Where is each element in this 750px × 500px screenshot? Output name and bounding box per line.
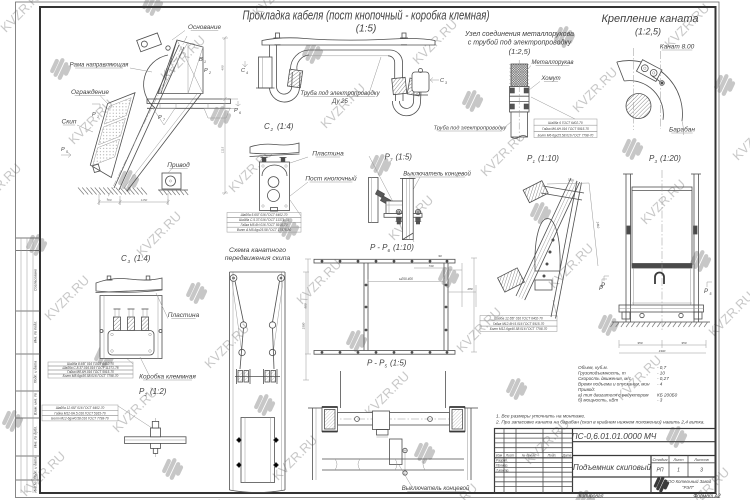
svg-text:Инв. № подл.: Инв. № подл. <box>34 321 38 343</box>
svg-text:(1:5): (1:5) <box>356 24 377 35</box>
svg-text:Хомут: Хомут <box>540 76 560 82</box>
svg-text:РП: РП <box>657 468 664 474</box>
svg-text:1. Все размеры уточнить на мон: 1. Все размеры уточнить на монтаже. <box>496 414 585 420</box>
svg-text:Стадия: Стадия <box>653 457 669 462</box>
svg-text:2. При запасовке каната на бар: 2. При запасовке каната на барабан (скип… <box>495 419 705 426</box>
svg-text:Коробка клеммная: Коробка клеммная <box>139 373 196 381</box>
svg-text:Гайка М6-6Н.016 ГОСТ 5915-70: Гайка М6-6Н.016 ГОСТ 5915-70 <box>542 127 589 131</box>
svg-text:1115: 1115 <box>221 147 225 154</box>
svg-text:1900: 1900 <box>659 349 666 353</box>
svg-text:P - P: P - P <box>367 359 385 368</box>
svg-text:C: C <box>264 122 270 131</box>
svg-text:280: 280 <box>466 287 472 291</box>
svg-text:Провер.: Провер. <box>496 464 508 468</box>
svg-text:(1:5): (1:5) <box>390 359 407 368</box>
svg-text:490: 490 <box>221 65 225 70</box>
svg-text:Канат 8.00: Канат 8.00 <box>660 44 695 51</box>
svg-text:Разраб.: Разраб. <box>496 459 508 463</box>
svg-text:Согласовано: Согласовано <box>34 269 38 291</box>
svg-text:5: 5 <box>710 292 712 296</box>
svg-text:Подп. и дата: Подп. и дата <box>34 361 38 384</box>
svg-text:740: 740 <box>567 178 573 183</box>
svg-text:P: P <box>61 147 65 153</box>
svg-text:Болт М6-6gх25.58.016 ГОСТ 7798: Болт М6-6gх25.58.016 ГОСТ 7798-70 <box>538 133 594 137</box>
svg-text:Схема канатного: Схема канатного <box>229 247 286 254</box>
svg-text:ПС-0,6.01.01.0000 МЧ: ПС-0,6.01.01.0000 МЧ <box>572 431 657 441</box>
svg-text:(1:2): (1:2) <box>150 387 167 396</box>
svg-text:P: P <box>599 286 603 292</box>
svg-text:Взам. инв. №: Взам. инв. № <box>34 393 38 415</box>
svg-text:Лист: Лист <box>672 457 684 462</box>
svg-text:1410: 1410 <box>596 221 601 228</box>
svg-text:№ докум.: № докум. <box>522 454 537 458</box>
svg-text:Инв. № дубл.: Инв. № дубл. <box>34 426 38 448</box>
svg-text:Листов: Листов <box>693 457 709 462</box>
svg-text:760: 760 <box>106 198 111 202</box>
svg-text:B: B <box>199 57 203 63</box>
svg-text:Пост кнопочный: Пост кнопочный <box>305 175 357 183</box>
svg-text:(1:2,5): (1:2,5) <box>635 27 661 37</box>
svg-text:- 4: - 4 <box>657 381 663 386</box>
svg-text:КБ 200Б0: КБ 200Б0 <box>657 392 678 397</box>
svg-text:(1:10): (1:10) <box>538 154 559 163</box>
svg-text:Шайба 5.65Г 016 ГОСТ 6402-70: Шайба 5.65Г 016 ГОСТ 6402-70 <box>241 213 288 217</box>
svg-text:P: P <box>704 289 708 295</box>
svg-text:Шайба С.5.37.016 ГОСТ 11371-78: Шайба С.5.37.016 ГОСТ 11371-78 <box>239 218 289 222</box>
svg-text:Шайба 12.65Г 016 ГОСТ 6402-70: Шайба 12.65Г 016 ГОСТ 6402-70 <box>56 406 105 410</box>
svg-text:C: C <box>121 254 127 263</box>
svg-text:- 10: - 10 <box>657 370 665 375</box>
svg-text:Шайба 12.65Г 016 ГОСТ 6402-70: Шайба 12.65Г 016 ГОСТ 6402-70 <box>494 317 543 321</box>
svg-text:Дата: Дата <box>562 454 572 458</box>
svg-text:Болт М12-6gх40.58.016 ГОСТ 779: Болт М12-6gх40.58.016 ГОСТ 7798-70 <box>490 327 548 331</box>
svg-text:1: 1 <box>677 468 680 474</box>
svg-text:Выключатель концевой: Выключатель концевой <box>402 485 470 492</box>
svg-text:C: C <box>241 68 245 74</box>
svg-text:1500: 1500 <box>302 322 306 329</box>
svg-text:ООО Котельный Завод: ООО Котельный Завод <box>665 479 712 484</box>
svg-text:1150: 1150 <box>141 198 148 202</box>
svg-text:4: 4 <box>246 71 248 75</box>
svg-text:Грузоподъемность, т: Грузоподъемность, т <box>578 370 626 375</box>
svg-text:1: 1 <box>97 115 99 119</box>
svg-text:Гайка М12-6Н.5.016 ГОСТ 5915-7: Гайка М12-6Н.5.016 ГОСТ 5915-70 <box>54 411 105 415</box>
svg-text:Лист: Лист <box>505 454 515 458</box>
svg-text:Пластина: Пластина <box>168 312 200 319</box>
svg-text:(1:5): (1:5) <box>396 153 413 162</box>
svg-text:P: P <box>158 115 162 121</box>
svg-text:Прокладка кабеля (пост кнопочн: Прокладка кабеля (пост кнопочный - короб… <box>243 9 490 23</box>
svg-text:Винт А.М5-6gх25.58 ГОСТ 17475-: Винт А.М5-6gх25.58 ГОСТ 17475-80 <box>237 228 292 232</box>
svg-text:P: P <box>234 108 238 114</box>
svg-text:C: C <box>440 78 444 84</box>
svg-text:3: 3 <box>445 81 447 85</box>
svg-text:Подп. и дата: Подп. и дата <box>34 457 38 480</box>
svg-text:Металлорукав: Металлорукав <box>531 60 573 66</box>
svg-text:90: 90 <box>438 254 442 258</box>
svg-text:740: 740 <box>428 264 433 268</box>
svg-text:Выключатель концевой: Выключатель концевой <box>403 171 471 178</box>
svg-text:2: 2 <box>208 71 211 75</box>
svg-text:950: 950 <box>637 341 642 345</box>
svg-text:(1:20): (1:20) <box>660 154 681 163</box>
svg-text:3: 3 <box>700 468 703 474</box>
svg-text:Подъемник скиповый: Подъемник скиповый <box>573 463 652 472</box>
svg-text:900: 900 <box>304 303 308 308</box>
svg-text:Привод: Привод <box>167 161 190 169</box>
svg-text:(1:10): (1:10) <box>393 243 414 252</box>
svg-text:(1:4): (1:4) <box>277 122 294 131</box>
svg-text:Копировал: Копировал <box>579 494 604 500</box>
svg-text:1: 1 <box>204 60 206 64</box>
svg-text:а) тип двигателя с редуктором: а) тип двигателя с редуктором <box>578 392 649 397</box>
svg-text:ы250.400: ы250.400 <box>399 277 413 281</box>
svg-text:Подп.: Подп. <box>548 454 557 458</box>
svg-text:с трубой под электропроводку: с трубой под электропроводку <box>468 39 572 47</box>
svg-text:Основание: Основание <box>188 24 222 31</box>
svg-text:Пластина: Пластина <box>312 151 344 158</box>
svg-text:Скип: Скип <box>62 119 77 126</box>
svg-text:Болт М12-6gх40.58.016 ГОСТ 779: Болт М12-6gх40.58.016 ГОСТ 7798-70 <box>51 417 109 421</box>
svg-text:P: P <box>92 112 96 118</box>
svg-text:(1:4): (1:4) <box>134 254 151 263</box>
svg-text:(1:2,5): (1:2,5) <box>509 47 531 56</box>
svg-text:Инв.№: Инв.№ <box>34 481 38 492</box>
svg-text:передвижения скипа: передвижения скипа <box>225 254 291 262</box>
svg-text:P - P: P - P <box>370 243 388 252</box>
svg-text:6: 6 <box>239 111 241 115</box>
svg-text:Болт М8-6gх30.58.016 ГОСТ 7798: Болт М8-6gх30.58.016 ГОСТ 7798-70 <box>63 374 119 378</box>
svg-text:2: 2 <box>270 127 274 132</box>
svg-text:Скорость движения, м/с: Скорость движения, м/с <box>578 376 632 381</box>
svg-text:б) мощность, кВт: б) мощность, кВт <box>578 398 618 403</box>
svg-text:Гайка М12-6Н.5.016 ГОСТ 5915-7: Гайка М12-6Н.5.016 ГОСТ 5915-70 <box>493 322 544 326</box>
svg-text:950: 950 <box>681 341 686 345</box>
svg-text:Труба под электропроводку: Труба под электропроводку <box>434 126 508 132</box>
svg-text:Рама направляющая: Рама направляющая <box>70 63 130 69</box>
svg-text:Привод:: Привод: <box>578 387 596 392</box>
svg-text:- 0,27: - 0,27 <box>657 376 669 381</box>
svg-text:Гайка М5-6Н.016 ГОСТ 5915-70: Гайка М5-6Н.016 ГОСТ 5915-70 <box>241 223 288 227</box>
svg-text:Формат А2: Формат А2 <box>693 494 721 500</box>
svg-text:Время подъема и опускания, мин: Время подъема и опускания, мин <box>578 381 650 386</box>
svg-text:P: P <box>204 68 208 74</box>
svg-text:- 3: - 3 <box>657 398 663 403</box>
svg-text:- 0,7: - 0,7 <box>657 365 667 370</box>
svg-text:2: 2 <box>144 392 148 397</box>
svg-text:Т.контр.: Т.контр. <box>496 468 509 472</box>
svg-text:Ду 25: Ду 25 <box>331 99 348 105</box>
svg-text:Ограждение: Ограждение <box>71 88 109 96</box>
svg-text:Барабан: Барабан <box>669 126 695 134</box>
svg-text:Узел соединения металлорукова: Узел соединения металлорукова <box>464 30 574 38</box>
svg-text:Шайба 6 ГОСТ 6402-70: Шайба 6 ГОСТ 6402-70 <box>548 121 583 125</box>
svg-text:Изм: Изм <box>496 454 503 458</box>
svg-text:5: 5 <box>66 150 68 154</box>
svg-text:Крепление каната: Крепление каната <box>601 13 698 25</box>
svg-text:"РЭП": "РЭП" <box>682 485 694 490</box>
svg-text:Объем, куб.м.: Объем, куб.м. <box>578 365 608 370</box>
